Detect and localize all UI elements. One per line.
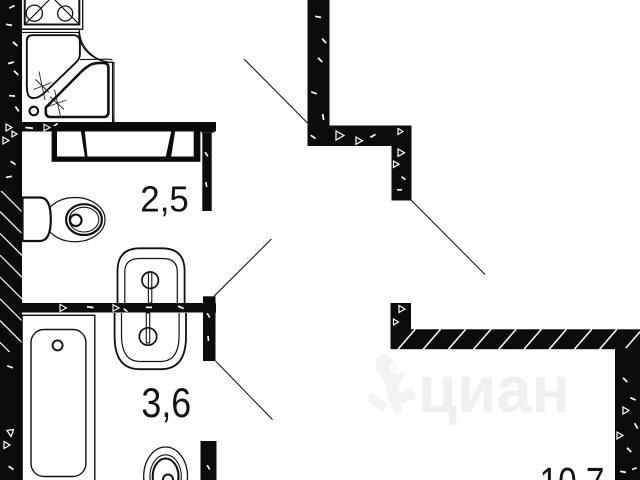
svg-text:10,7: 10,7: [540, 458, 605, 480]
svg-text:циан: циан: [418, 352, 570, 426]
svg-text:2,5: 2,5: [140, 179, 189, 220]
svg-text:3,6: 3,6: [141, 379, 191, 426]
